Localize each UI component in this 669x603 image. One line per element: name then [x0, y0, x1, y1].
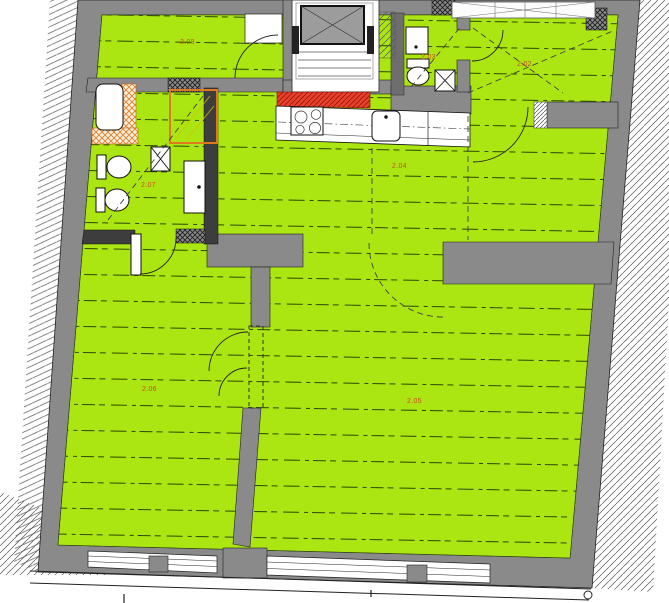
- window-pier-left: [149, 556, 168, 572]
- cistern: [96, 188, 105, 212]
- drain-dot: [197, 185, 201, 189]
- washbasin-fixture: [184, 161, 205, 213]
- room-label-2.08: 2.08: [180, 39, 195, 46]
- cistern: [97, 155, 106, 179]
- room-label-2.03: 2.03: [421, 54, 436, 61]
- wall-bath-right: [204, 88, 218, 244]
- wall-room202-bottom: [547, 102, 618, 128]
- drain-dot: [414, 45, 417, 48]
- wall-hall-tbar: [207, 234, 303, 267]
- toilet-fixture: [107, 156, 131, 178]
- wall-room205-top: [443, 242, 614, 284]
- room-label-2.05: 2.05: [407, 398, 422, 405]
- faucet-dot: [384, 115, 387, 118]
- chimney-notch: [245, 14, 282, 43]
- door-sill-room202: [534, 102, 547, 128]
- staircase-top: [452, 2, 595, 18]
- new-wall-orange-right: [122, 84, 136, 131]
- stair-post-right: [367, 26, 374, 54]
- floor-plan-canvas: 2.082.072.032.022.042.062.05: [0, 0, 669, 603]
- door-leaf-bath: [131, 234, 141, 275]
- floor-plan-page: 2.082.072.032.022.042.062.05: [0, 0, 669, 603]
- window-pier-right: [407, 565, 427, 582]
- chimney-hatch-wc: [432, 0, 455, 15]
- bathtub-fixture: [96, 84, 123, 130]
- door-sill-bath: [176, 229, 205, 243]
- wall-wc-right-lower: [457, 60, 470, 92]
- stair-post-left: [292, 26, 299, 54]
- wall-bath-bottom: [82, 230, 135, 244]
- kitchen-red-strip: [277, 92, 370, 108]
- room-label-2.02: 2.02: [517, 61, 532, 68]
- room-label-2.07: 2.07: [141, 182, 156, 189]
- survey-point-circle: [584, 591, 592, 599]
- room-label-2.06: 2.06: [142, 386, 157, 393]
- stairwell: [292, 0, 379, 92]
- wall-divider-upper: [251, 267, 270, 327]
- room-label-2.04: 2.04: [392, 163, 407, 170]
- wc-washbasin-fixture: [406, 27, 428, 54]
- window-pier-center: [223, 548, 267, 578]
